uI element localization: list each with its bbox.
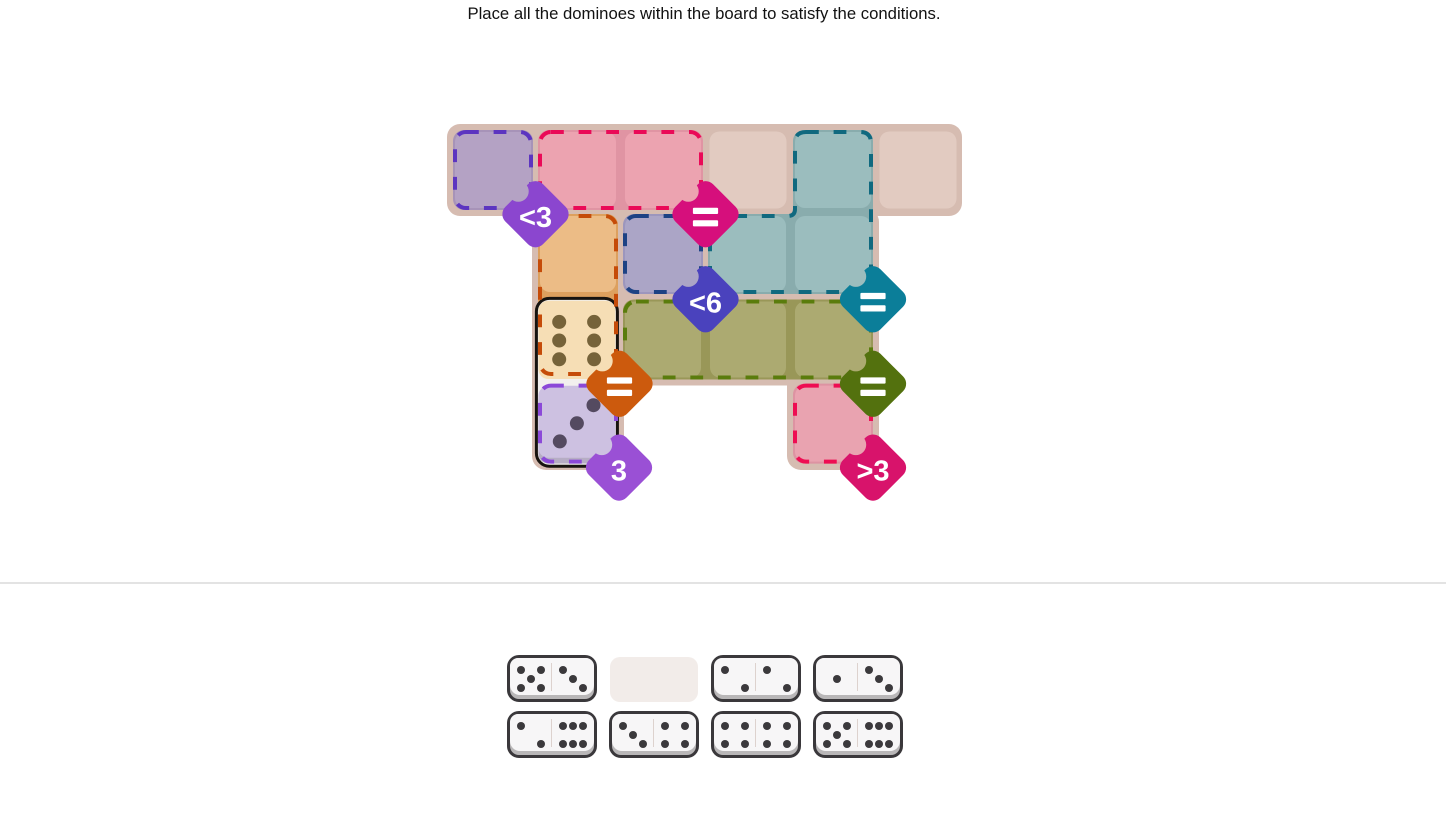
svg-text:<6: <6 [689,287,722,319]
svg-text:<3: <3 [519,202,552,234]
svg-text:3: 3 [611,456,627,488]
svg-text:>3: >3 [856,456,889,488]
